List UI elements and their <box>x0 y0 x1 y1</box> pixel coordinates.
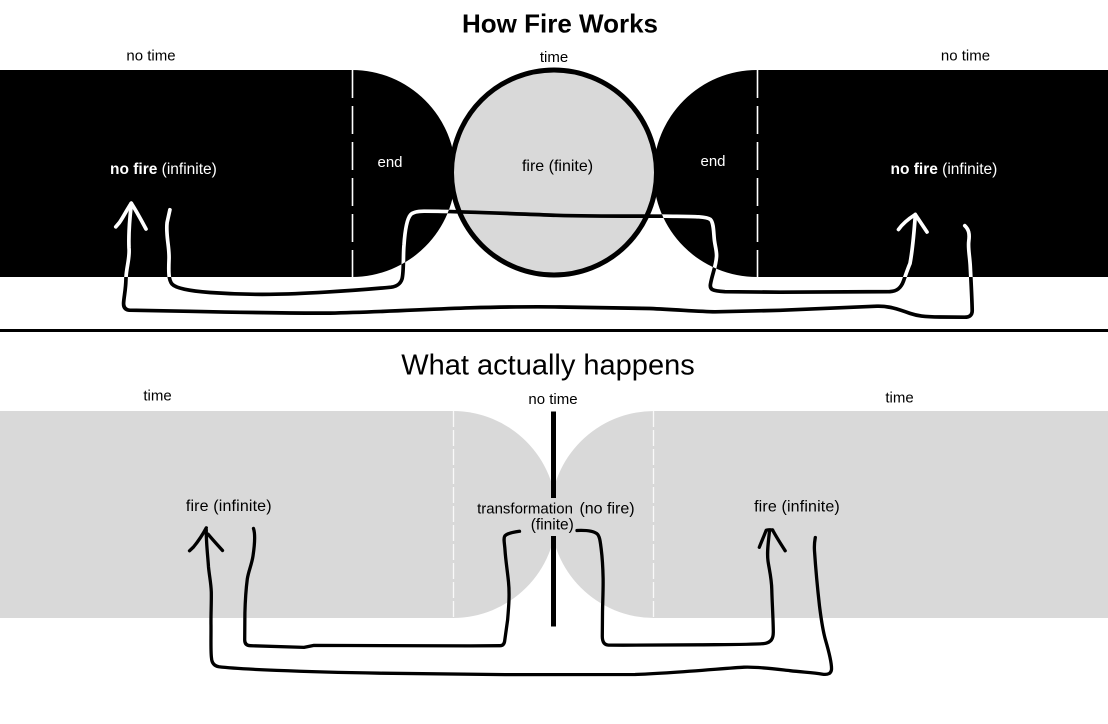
svg-text:end: end <box>700 153 725 170</box>
svg-text:time: time <box>540 49 568 66</box>
svg-text:(no fire): (no fire) <box>579 501 634 518</box>
svg-text:no time: no time <box>941 47 990 64</box>
svg-text:no fire (infinite): no fire (infinite) <box>110 161 217 178</box>
svg-text:fire (finite): fire (finite) <box>522 158 593 175</box>
svg-text:fire (infinite): fire (infinite) <box>186 498 272 515</box>
svg-text:What actually happens: What actually happens <box>401 350 694 382</box>
svg-text:no fire (infinite): no fire (infinite) <box>891 161 998 178</box>
svg-text:fire (infinite): fire (infinite) <box>754 499 840 516</box>
svg-text:transformation: transformation <box>477 501 573 518</box>
svg-text:no time: no time <box>528 391 577 408</box>
svg-text:no time: no time <box>126 48 175 65</box>
svg-text:(finite): (finite) <box>531 517 574 534</box>
svg-text:How Fire Works: How Fire Works <box>462 9 658 39</box>
svg-text:time: time <box>885 390 913 407</box>
svg-text:end: end <box>377 154 402 171</box>
svg-text:time: time <box>143 388 171 405</box>
